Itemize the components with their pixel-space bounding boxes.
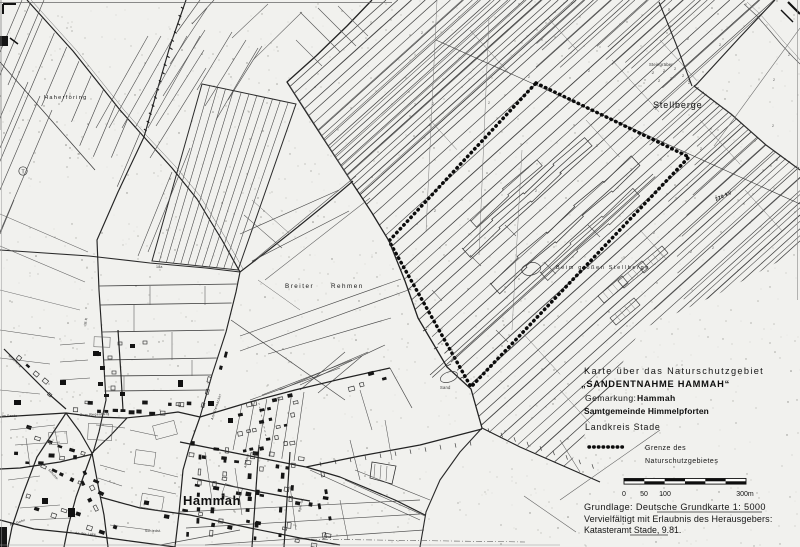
svg-text:0: 0 — [622, 491, 626, 498]
svg-text:Steingräber: Steingräber — [649, 62, 673, 67]
svg-text:Grenze des: Grenze des — [645, 445, 686, 452]
svg-text:2: 2 — [719, 43, 721, 47]
svg-text:2: 2 — [528, 75, 530, 79]
svg-text:2: 2 — [414, 103, 416, 107]
svg-text:18a: 18a — [156, 265, 163, 269]
svg-text:2: 2 — [776, 158, 778, 162]
svg-text:2: 2 — [429, 123, 431, 127]
svg-text:2: 2 — [712, 246, 714, 250]
svg-text:2: 2 — [434, 209, 436, 213]
svg-text:300m: 300m — [736, 491, 754, 498]
svg-text:Samtgemeinde Himmelpforten: Samtgemeinde Himmelpforten — [584, 406, 709, 416]
svg-text:Grundlage: Deutsche Grundkarte: Grundlage: Deutsche Grundkarte 1: 5000 — [584, 502, 766, 512]
svg-text:Beim großen Stellberge: Beim großen Stellberge — [556, 265, 650, 271]
svg-text:„SANDENTNAHME HAMMAH“: „SANDENTNAHME HAMMAH“ — [581, 379, 730, 389]
svg-text:2: 2 — [421, 31, 423, 35]
svg-text:Karte über das Naturschutzgebi: Karte über das Naturschutzgebiet — [584, 366, 764, 376]
svg-text:Landkreis Stade: Landkreis Stade — [585, 422, 661, 432]
svg-text:Vervielfältigt mit Erlaubnis d: Vervielfältigt mit Erlaubnis des Herausg… — [584, 514, 773, 524]
svg-text:2: 2 — [700, 147, 702, 151]
svg-text:2: 2 — [596, 144, 598, 148]
svg-text:2: 2 — [535, 189, 537, 193]
svg-text:2: 2 — [687, 37, 689, 41]
svg-text:2: 2 — [432, 102, 434, 106]
svg-text:Rehmen: Rehmen — [331, 283, 364, 290]
svg-text:Katasteramt Stade, 9.81.: Katasteramt Stade, 9.81. — [584, 525, 681, 535]
svg-text:Gemarkung:: Gemarkung: — [585, 393, 636, 403]
svg-text:Haherföring: Haherföring — [44, 95, 88, 101]
svg-text:2: 2 — [690, 250, 692, 254]
svg-text:2: 2 — [488, 101, 490, 105]
svg-text:100: 100 — [659, 491, 671, 498]
svg-text:Schiedst.: Schiedst. — [145, 529, 162, 533]
svg-text:Hammah: Hammah — [637, 393, 676, 403]
svg-text:2: 2 — [588, 69, 590, 73]
svg-text:2: 2 — [788, 53, 790, 57]
svg-text:Naturschutzgebietes: Naturschutzgebietes — [645, 458, 718, 465]
svg-text:Stellberge: Stellberge — [653, 100, 703, 110]
svg-text:Breiter: Breiter — [285, 283, 314, 290]
svg-text:Hammah: Hammah — [183, 493, 241, 508]
svg-text:Im Sande: Im Sande — [2, 414, 17, 418]
svg-text:2: 2 — [773, 78, 775, 82]
svg-text:2: 2 — [653, 231, 655, 235]
svg-text:2: 2 — [772, 124, 774, 128]
svg-text:2: 2 — [630, 168, 632, 172]
svg-text:50: 50 — [640, 491, 648, 498]
svg-text:2: 2 — [668, 8, 670, 12]
svg-text:Sand: Sand — [440, 385, 451, 390]
